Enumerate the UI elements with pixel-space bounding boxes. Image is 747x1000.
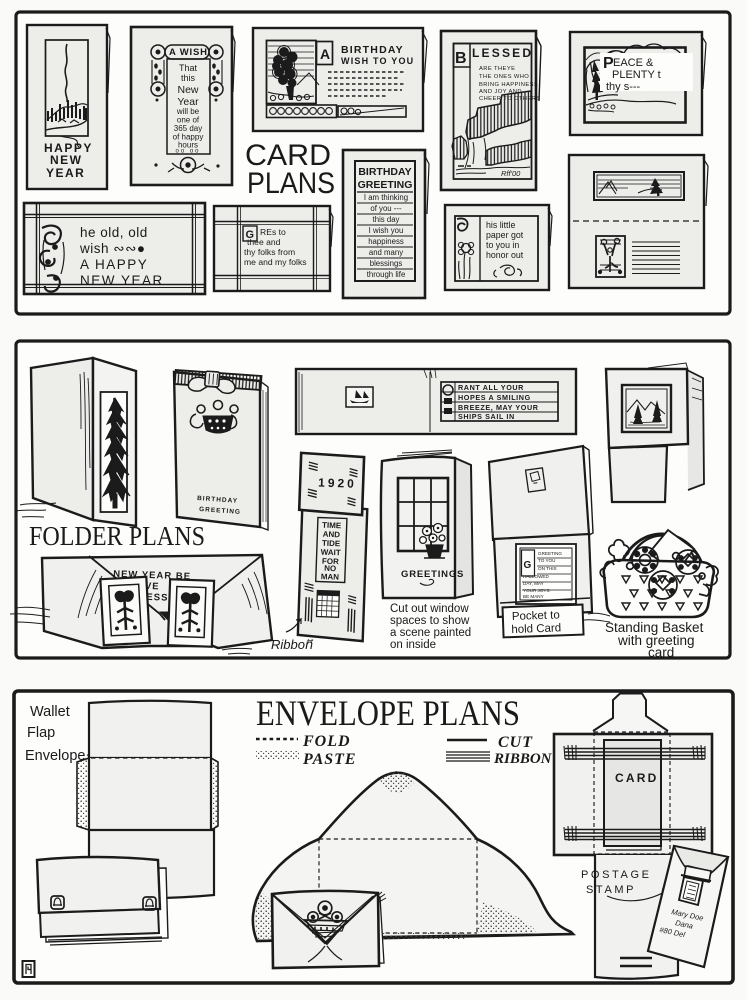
svg-text:G: G	[524, 560, 532, 571]
svg-text:thy s---: thy s---	[606, 81, 641, 93]
svg-text:A WISH: A WISH	[169, 47, 208, 58]
svg-text:and many: and many	[369, 248, 403, 257]
svg-text:card: card	[648, 645, 674, 660]
svg-text:A: A	[320, 46, 330, 62]
svg-text:HOPES A SMILING: HOPES A SMILING	[458, 393, 531, 402]
svg-text:LESSED: LESSED	[472, 46, 533, 60]
svg-text:I am thinking: I am thinking	[364, 193, 408, 202]
svg-text:PLENTY t: PLENTY t	[612, 69, 661, 81]
svg-text:POSTAGE: POSTAGE	[581, 869, 652, 881]
svg-text:CUT: CUT	[498, 734, 533, 751]
svg-text:BIRTHDAY: BIRTHDAY	[358, 166, 411, 178]
svg-text:this: this	[181, 73, 196, 83]
svg-text:he old, old: he old, old	[80, 225, 148, 240]
svg-text:MAN: MAN	[321, 572, 340, 582]
svg-text:YEAR: YEAR	[46, 166, 85, 180]
svg-text:BIRTHDAY: BIRTHDAY	[341, 44, 404, 56]
svg-text:REs to: REs to	[260, 227, 286, 237]
svg-text:oo oo: oo oo	[175, 149, 200, 155]
svg-text:me and my folks: me and my folks	[244, 257, 307, 267]
svg-text:wish ∾∾●: wish ∾∾●	[79, 241, 146, 256]
svg-text:honor out: honor out	[486, 250, 524, 260]
svg-text:Pocket to: Pocket to	[512, 609, 560, 623]
svg-text:New: New	[177, 84, 198, 96]
svg-text:BE MANY: BE MANY	[523, 594, 544, 599]
svg-text:a scene painted: a scene painted	[390, 627, 471, 639]
svg-text:to you in: to you in	[486, 240, 519, 250]
svg-text:happiness: happiness	[368, 237, 404, 246]
svg-text:YOUR JOYS: YOUR JOYS	[523, 588, 550, 593]
svg-text:this day: this day	[373, 215, 400, 224]
svg-text:FOLDER PLANS: FOLDER PLANS	[29, 521, 205, 551]
svg-text:SHIPS SAIL IN: SHIPS SAIL IN	[458, 412, 515, 421]
svg-text:ESS: ESS	[146, 592, 168, 604]
svg-text:DAY, MAY: DAY, MAY	[523, 581, 544, 586]
svg-text:FOLD: FOLD	[302, 733, 351, 750]
svg-text:1920: 1920	[318, 475, 357, 490]
svg-text:CARD: CARD	[615, 771, 658, 785]
svg-text:RIBBON: RIBBON	[493, 751, 553, 767]
svg-text:through life: through life	[367, 270, 406, 279]
svg-text:A HAPPY: A HAPPY	[80, 257, 148, 272]
svg-text:Rff'00: Rff'00	[501, 169, 521, 178]
svg-text:BREEZE, MAY YOUR: BREEZE, MAY YOUR	[458, 403, 539, 412]
svg-text:NEW YEAR: NEW YEAR	[80, 273, 164, 288]
svg-text:GREETING: GREETING	[358, 179, 413, 191]
svg-text:thee and: thee and	[247, 237, 281, 247]
svg-text:ON THIS: ON THIS	[538, 566, 557, 571]
svg-text:ENVELOPE PLANS: ENVELOPE PLANS	[256, 693, 520, 733]
svg-text:blessings: blessings	[370, 259, 403, 268]
svg-text:NEW: NEW	[50, 153, 83, 167]
svg-text:Cut out window: Cut out window	[390, 603, 469, 615]
svg-text:GREETING: GREETING	[538, 551, 562, 556]
svg-text:TO YOU: TO YOU	[538, 558, 555, 563]
svg-text:THE ONES WHO: THE ONES WHO	[479, 74, 529, 80]
svg-text:of you ---: of you ---	[370, 204, 402, 213]
svg-text:Flap: Flap	[27, 725, 55, 741]
svg-text:hold Card: hold Card	[511, 622, 561, 636]
svg-text:I wish you: I wish you	[369, 226, 404, 235]
svg-text:paper got: paper got	[486, 230, 524, 240]
svg-text:That: That	[179, 63, 198, 73]
svg-text:spaces to show: spaces to show	[390, 615, 470, 627]
svg-text:B: B	[455, 50, 467, 67]
svg-text:Ribbon⃡: Ribbon⃡	[271, 637, 313, 652]
svg-text:EACE &: EACE &	[613, 57, 654, 69]
svg-text:on inside: on inside	[390, 639, 436, 651]
svg-text:GREETINGS: GREETINGS	[401, 569, 464, 580]
svg-text:BRING HAPPINESS: BRING HAPPINESS	[479, 82, 538, 88]
svg-text:PASTE: PASTE	[302, 751, 357, 768]
svg-text:ARE THEYE: ARE THEYE	[479, 66, 515, 72]
svg-text:his little: his little	[486, 220, 515, 230]
svg-text:PLANS: PLANS	[247, 167, 335, 200]
svg-text:HALLOWED: HALLOWED	[523, 574, 549, 579]
svg-text:STAMP: STAMP	[586, 884, 636, 896]
svg-text:RANT ALL YOUR: RANT ALL YOUR	[458, 383, 524, 392]
svg-text:thy folks from: thy folks from	[244, 247, 295, 257]
svg-text:Wallet: Wallet	[30, 704, 70, 720]
svg-text:WISH TO YOU: WISH TO YOU	[341, 56, 414, 66]
